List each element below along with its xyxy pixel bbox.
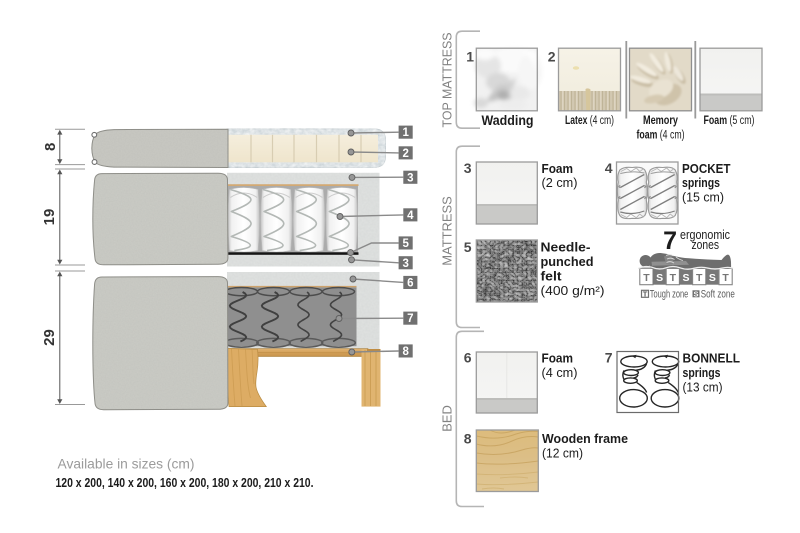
svg-text:Soft zone: Soft zone <box>701 289 735 301</box>
svg-text:Tough zone: Tough zone <box>650 289 689 301</box>
svg-text:8: 8 <box>464 431 472 447</box>
svg-text:2: 2 <box>402 148 408 160</box>
svg-text:1: 1 <box>402 127 409 139</box>
svg-text:TOP MATTRESS: TOP MATTRESS <box>440 32 455 127</box>
svg-text:BONNELL: BONNELL <box>683 350 741 365</box>
svg-text:2: 2 <box>548 49 556 65</box>
svg-text:5: 5 <box>464 239 472 255</box>
svg-text:Wadding: Wadding <box>482 112 534 128</box>
svg-text:S: S <box>656 272 663 284</box>
svg-text:6: 6 <box>464 350 472 366</box>
svg-text:springs: springs <box>683 365 721 380</box>
svg-text:3: 3 <box>464 160 472 176</box>
svg-text:Latex (4 cm): Latex (4 cm) <box>565 113 614 127</box>
svg-text:4: 4 <box>407 210 414 222</box>
svg-text:7: 7 <box>663 227 677 255</box>
svg-text:T: T <box>722 272 729 284</box>
svg-text:(4 cm): (4 cm) <box>542 365 578 380</box>
svg-text:19: 19 <box>41 209 58 226</box>
svg-text:S: S <box>693 290 698 299</box>
svg-text:3: 3 <box>402 258 408 270</box>
svg-text:7: 7 <box>407 313 413 325</box>
svg-text:Foam: Foam <box>542 161 574 176</box>
svg-text:T: T <box>643 290 648 299</box>
svg-text:S: S <box>682 272 689 284</box>
svg-text:punched: punched <box>541 254 594 269</box>
svg-text:foam (4 cm): foam (4 cm) <box>637 128 685 142</box>
svg-text:(400 g/m²): (400 g/m²) <box>541 283 605 298</box>
svg-text:29: 29 <box>41 329 58 346</box>
svg-text:(12 cm): (12 cm) <box>542 446 583 461</box>
svg-text:Foam: Foam <box>542 350 574 365</box>
svg-text:Foam (5 cm): Foam (5 cm) <box>704 113 755 127</box>
svg-text:(15 cm): (15 cm) <box>682 190 724 205</box>
svg-text:8: 8 <box>42 143 59 151</box>
svg-text:Memory: Memory <box>643 113 678 127</box>
svg-text:5: 5 <box>402 238 409 250</box>
svg-text:S: S <box>709 272 716 284</box>
svg-text:T: T <box>670 272 677 284</box>
svg-text:Needle-: Needle- <box>541 240 591 255</box>
svg-text:(2 cm): (2 cm) <box>542 175 578 190</box>
svg-text:T: T <box>643 272 650 284</box>
svg-text:6: 6 <box>407 278 413 290</box>
svg-text:7: 7 <box>605 350 613 366</box>
svg-text:120 x 200, 140 x 200, 160 x 20: 120 x 200, 140 x 200, 160 x 200, 180 x 2… <box>56 475 314 490</box>
svg-text:1: 1 <box>466 49 474 65</box>
svg-text:zones: zones <box>692 238 720 252</box>
svg-text:3: 3 <box>407 172 413 184</box>
svg-text:4: 4 <box>605 160 613 176</box>
svg-text:8: 8 <box>402 346 409 358</box>
svg-text:springs: springs <box>682 175 720 190</box>
svg-text:MATTRESS: MATTRESS <box>440 196 455 266</box>
svg-text:Available in sizes (cm): Available in sizes (cm) <box>58 457 195 472</box>
svg-text:Wooden frame: Wooden frame <box>542 431 628 446</box>
svg-text:T: T <box>696 272 703 284</box>
svg-text:(13 cm): (13 cm) <box>683 379 723 394</box>
svg-text:felt: felt <box>541 269 563 284</box>
svg-text:BED: BED <box>440 405 455 432</box>
svg-text:POCKET: POCKET <box>682 161 731 176</box>
